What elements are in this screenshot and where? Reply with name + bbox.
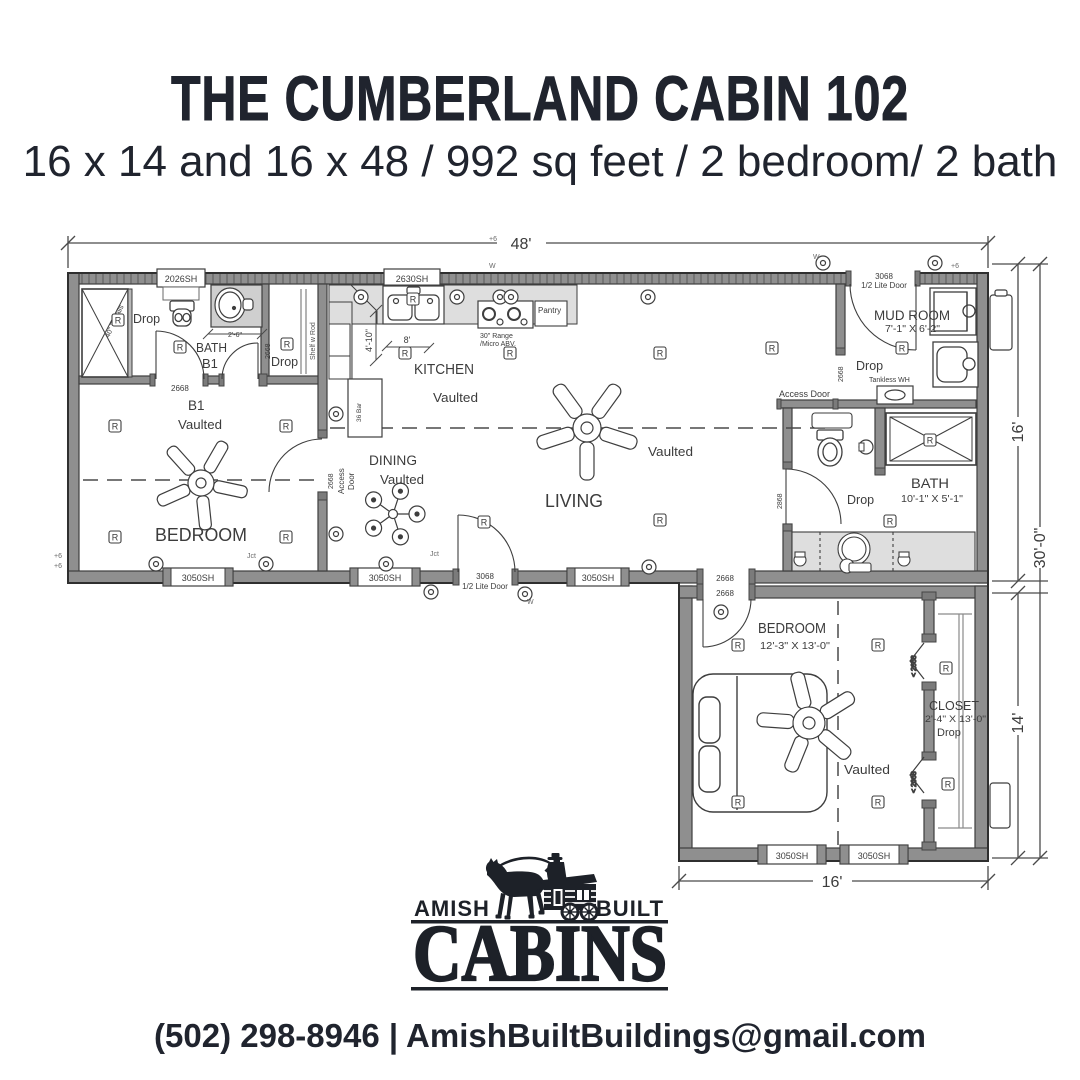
svg-text:4'-10": 4'-10" — [364, 329, 374, 352]
svg-text:Jct: Jct — [430, 551, 439, 558]
svg-text:W: W — [489, 263, 496, 270]
svg-text:3050SH: 3050SH — [858, 851, 891, 861]
svg-text:Drop: Drop — [847, 493, 874, 507]
svg-text:Vaulted: Vaulted — [648, 444, 693, 459]
svg-text:Drop: Drop — [856, 359, 883, 373]
svg-text:Pantry: Pantry — [538, 306, 561, 315]
svg-text:2668: 2668 — [265, 343, 272, 359]
svg-text:BEDROOM: BEDROOM — [758, 621, 826, 637]
svg-text:W: W — [527, 599, 534, 606]
svg-text:3068: 3068 — [476, 572, 494, 581]
svg-text:MUD ROOM: MUD ROOM — [874, 308, 950, 323]
svg-text:Tankless WH: Tankless WH — [869, 377, 910, 384]
svg-text:Drop: Drop — [271, 355, 298, 369]
svg-text:14': 14' — [1010, 713, 1027, 734]
svg-text:KITCHEN: KITCHEN — [414, 361, 474, 378]
svg-text:+6: +6 — [54, 563, 62, 570]
svg-text:Drop: Drop — [133, 312, 160, 326]
svg-text:2668: 2668 — [171, 384, 189, 393]
svg-text:3050SH: 3050SH — [182, 573, 215, 583]
svg-text:2630SH: 2630SH — [396, 274, 429, 284]
svg-text:Access: Access — [337, 468, 346, 494]
svg-text:2668: 2668 — [716, 574, 734, 583]
svg-text:16 x 14 and 16 x 48 / 992 sq f: 16 x 14 and 16 x 48 / 992 sq feet / 2 be… — [23, 137, 1058, 186]
svg-text:Door: Door — [347, 472, 356, 490]
svg-text:CABINS: CABINS — [413, 910, 667, 998]
svg-text:2026SH: 2026SH — [165, 274, 198, 284]
svg-text:CLOSET: CLOSET — [929, 699, 979, 713]
svg-text:+6: +6 — [54, 553, 62, 560]
svg-text:Drop: Drop — [937, 727, 961, 739]
svg-text:1/2 Lite Door: 1/2 Lite Door — [462, 582, 508, 591]
svg-text:2668: 2668 — [716, 589, 734, 598]
svg-text:BATH: BATH — [911, 475, 949, 491]
svg-text:7'-1" X 6'-2": 7'-1" X 6'-2" — [885, 324, 940, 335]
svg-text:BEDROOM: BEDROOM — [155, 525, 247, 545]
svg-text:30" Range: 30" Range — [480, 333, 513, 340]
svg-text:1/2 Lite Door: 1/2 Lite Door — [861, 281, 907, 290]
svg-text:LIVING: LIVING — [545, 491, 603, 511]
svg-text:8': 8' — [404, 335, 411, 345]
svg-text:R: R — [115, 316, 122, 326]
svg-text:2668: 2668 — [838, 366, 845, 382]
svg-text:B1: B1 — [188, 398, 205, 413]
svg-text:30'-0": 30'-0" — [1032, 528, 1049, 569]
svg-text:+6: +6 — [951, 263, 959, 270]
svg-text:DINING: DINING — [369, 453, 417, 468]
svg-text:2868: 2868 — [777, 493, 784, 509]
svg-text:3050SH: 3050SH — [582, 573, 615, 583]
svg-text:3050SH: 3050SH — [369, 573, 402, 583]
svg-text:Shelf w Rod: Shelf w Rod — [310, 322, 317, 360]
svg-text:48': 48' — [511, 236, 532, 253]
svg-text:2668: 2668 — [328, 473, 335, 489]
svg-text:12'-3" X 13'-0": 12'-3" X 13'-0" — [760, 641, 830, 652]
svg-text:Access Door: Access Door — [779, 389, 830, 399]
svg-text:3068: 3068 — [875, 272, 893, 281]
svg-text:B1: B1 — [202, 356, 218, 371]
svg-text:+6: +6 — [489, 236, 497, 243]
svg-text:Vaulted: Vaulted — [380, 472, 424, 487]
svg-text:2'-4" X 13'-0": 2'-4" X 13'-0" — [925, 714, 986, 724]
svg-text:16': 16' — [822, 874, 843, 891]
svg-text:16': 16' — [1010, 422, 1027, 443]
svg-text:2'-6": 2'-6" — [228, 332, 242, 339]
svg-text:THE CUMBERLAND CABIN 102: THE CUMBERLAND CABIN 102 — [171, 63, 909, 134]
svg-text:< 2668: < 2668 — [911, 655, 918, 677]
svg-text:(502) 298-8946 | AmishBuiltBui: (502) 298-8946 | AmishBuiltBuildings@gma… — [154, 1017, 926, 1054]
svg-text:Jct: Jct — [247, 553, 256, 560]
svg-text:BATH: BATH — [196, 340, 227, 355]
svg-text:3050SH: 3050SH — [776, 851, 809, 861]
svg-text:< 2668: < 2668 — [911, 771, 918, 793]
svg-text:W: W — [813, 254, 820, 261]
svg-text:36 Bar: 36 Bar — [356, 402, 363, 422]
svg-text:Vaulted: Vaulted — [178, 418, 222, 432]
svg-text:10'-1" X 5'-1": 10'-1" X 5'-1" — [901, 494, 963, 505]
svg-text:Vaulted: Vaulted — [844, 762, 890, 777]
svg-text:Vaulted: Vaulted — [433, 390, 478, 405]
